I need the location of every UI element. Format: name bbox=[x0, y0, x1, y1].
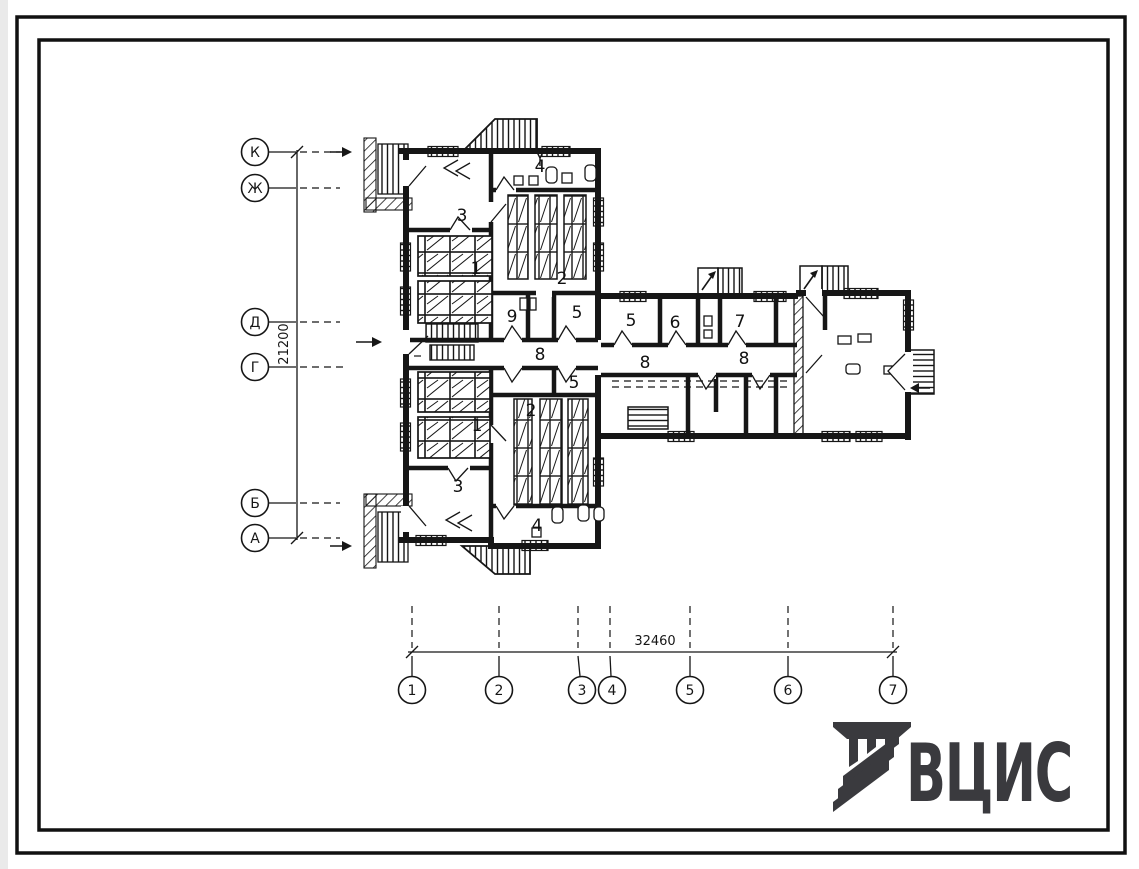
floor-plan: 3 1 2 4 9 5 8 5 2 1 3 4 5 6 7 8 8 bbox=[330, 119, 934, 574]
striped-monogram-icon bbox=[833, 722, 911, 812]
axis-marker-k: К bbox=[242, 139, 341, 166]
vcis-logo: ВЦИС bbox=[833, 722, 1072, 820]
axis-marker-zh: Ж bbox=[242, 175, 341, 202]
svg-text:4: 4 bbox=[608, 683, 617, 699]
scan-edge bbox=[0, 0, 8, 869]
svg-text:А: А bbox=[250, 531, 260, 547]
bottom-dimension: 32460 bbox=[634, 634, 675, 649]
axis-marker-2: 2 bbox=[486, 606, 513, 704]
svg-text:Г: Г bbox=[251, 360, 260, 376]
svg-text:7: 7 bbox=[889, 683, 898, 699]
axis-marker-a: А bbox=[242, 525, 341, 552]
svg-text:К: К bbox=[250, 145, 260, 161]
blueprint-scan: 21200 К Ж Д Г Б А 32460 bbox=[0, 0, 1139, 869]
axis-marker-6: 6 bbox=[775, 606, 802, 704]
svg-text:6: 6 bbox=[784, 683, 793, 699]
room-label: 4 bbox=[535, 157, 546, 177]
axis-marker-g: Г bbox=[242, 354, 346, 381]
south-steps bbox=[628, 407, 668, 429]
room-label: 5 bbox=[626, 311, 637, 331]
room-label: 3 bbox=[453, 477, 464, 497]
room-label: 8 bbox=[739, 349, 750, 369]
axis-marker-3: 3 bbox=[569, 606, 596, 704]
room-label: 3 bbox=[457, 206, 468, 226]
axis-marker-5: 5 bbox=[677, 606, 704, 704]
bottom-axis: 32460 1 2 3 4 5 6 7 bbox=[399, 606, 907, 704]
room-label: 1 bbox=[471, 259, 482, 279]
logo-text: ВЦИС bbox=[906, 727, 1072, 820]
room-label: 5 bbox=[569, 373, 580, 393]
axis-marker-4: 4 bbox=[599, 606, 626, 704]
svg-text:Ж: Ж bbox=[247, 181, 262, 197]
walls bbox=[398, 148, 913, 549]
room-label: 8 bbox=[535, 345, 546, 365]
axis-marker-7: 7 bbox=[880, 606, 907, 704]
bottom-ramp-stair bbox=[462, 546, 530, 574]
svg-text:Д: Д bbox=[250, 315, 261, 331]
top-ramp-stair bbox=[464, 119, 537, 150]
room-label: 6 bbox=[670, 313, 681, 333]
svg-text:Б: Б bbox=[250, 496, 260, 512]
corridor-stair bbox=[426, 324, 478, 360]
svg-text:3: 3 bbox=[578, 683, 587, 699]
hatched-wall bbox=[794, 296, 803, 436]
chevron-arrow bbox=[444, 160, 470, 179]
room-label: 5 bbox=[572, 303, 583, 323]
svg-text:2: 2 bbox=[495, 683, 504, 699]
room-label: 7 bbox=[735, 312, 746, 332]
room-label: 9 bbox=[507, 307, 518, 327]
svg-text:1: 1 bbox=[408, 683, 417, 699]
room-label: 2 bbox=[557, 269, 568, 289]
room-label: 4 bbox=[532, 516, 543, 536]
left-axis: 21200 К Ж Д Г Б А bbox=[242, 139, 346, 552]
axis-marker-b: Б bbox=[242, 490, 341, 517]
axis-marker-1: 1 bbox=[399, 606, 426, 704]
room-label: 8 bbox=[640, 353, 651, 373]
windows bbox=[401, 147, 914, 551]
left-dimension: 21200 bbox=[277, 323, 292, 364]
room-label: 2 bbox=[526, 401, 537, 421]
chevron-arrow bbox=[446, 512, 472, 531]
svg-text:5: 5 bbox=[686, 683, 695, 699]
room-label: 1 bbox=[472, 416, 483, 436]
